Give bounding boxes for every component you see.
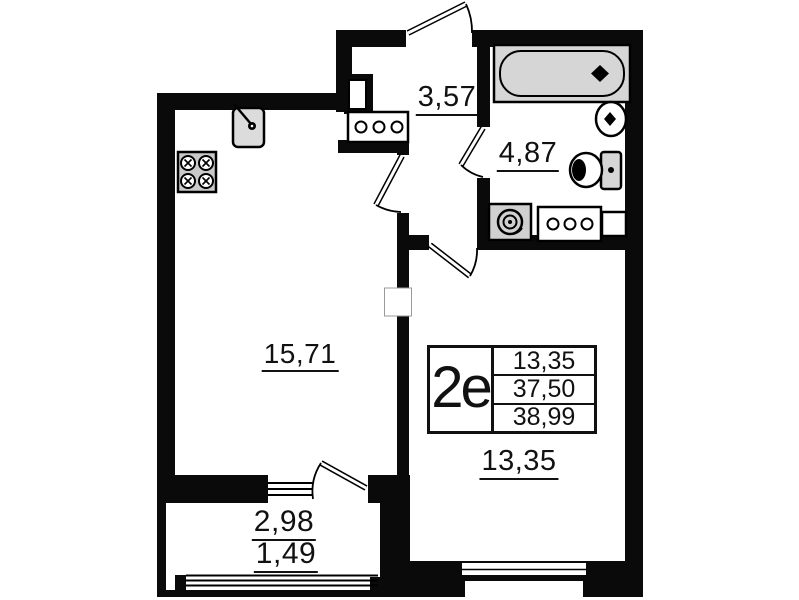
wall-kitchen-bottom-left <box>157 475 268 503</box>
wall-balcony-glaze-edge-left <box>175 575 186 597</box>
floorplan-canvas: 15,71 3,57 4,87 13,35 2,98 1,49 2е 13,35… <box>0 0 799 600</box>
bathtub-icon <box>494 45 630 102</box>
wall-balcony-bottom <box>157 590 380 597</box>
bathroom-area-label: 4,87 <box>497 139 559 172</box>
entry-door-swing-icon <box>408 4 472 33</box>
hallway-area-label: 3,57 <box>416 83 478 116</box>
wall-balcony-right <box>380 503 410 597</box>
unit-stamp-table: 2е 13,35 37,50 38,99 <box>427 345 597 434</box>
unit-type-label: 2е <box>430 348 494 431</box>
wall-hall-bottom-stub <box>397 235 429 250</box>
wall-left <box>157 93 175 478</box>
toilet-icon <box>570 152 621 189</box>
balcony-glazing-icon <box>186 576 378 586</box>
wall-kitchen-room-upper <box>397 213 409 288</box>
kitchen-door-swing-icon <box>376 156 402 212</box>
unit-stamp-rows: 13,35 37,50 38,99 <box>494 348 594 431</box>
wall-balcony-left <box>157 478 166 597</box>
floorplan-drawing <box>0 0 799 600</box>
kitchen-area-label: 15,71 <box>262 340 339 372</box>
bathroom-door-swing-icon <box>461 128 483 177</box>
kitchen-window-icon <box>268 477 313 503</box>
kitchen-sink-icon <box>233 104 264 147</box>
balcony-area-reduced-label: 1,49 <box>254 539 318 573</box>
stamp-row-living-area: 13,35 <box>494 348 594 374</box>
wall-bath-left-upper <box>477 47 490 127</box>
balcony-door-swing-icon <box>312 463 366 499</box>
stove-icon <box>178 152 216 192</box>
wall-right <box>625 30 643 597</box>
vent-niche-icon <box>602 212 626 236</box>
wall-niche <box>349 80 366 109</box>
stamp-row-total-area: 38,99 <box>494 403 594 431</box>
balcony-area-full-label: 2,98 <box>252 507 316 541</box>
room-door-swing-icon <box>430 245 477 276</box>
washbasin-icon <box>596 102 626 136</box>
vent-block-bath-icon <box>538 207 601 241</box>
wall-kitchen-bottom-right <box>368 475 410 503</box>
vent-block-hall-icon <box>348 112 408 142</box>
stamp-row-area: 37,50 <box>494 374 594 402</box>
bedroom-area-label: 13,35 <box>479 447 558 480</box>
washing-machine-icon <box>489 204 531 240</box>
wall-shaft-notch <box>385 288 412 316</box>
